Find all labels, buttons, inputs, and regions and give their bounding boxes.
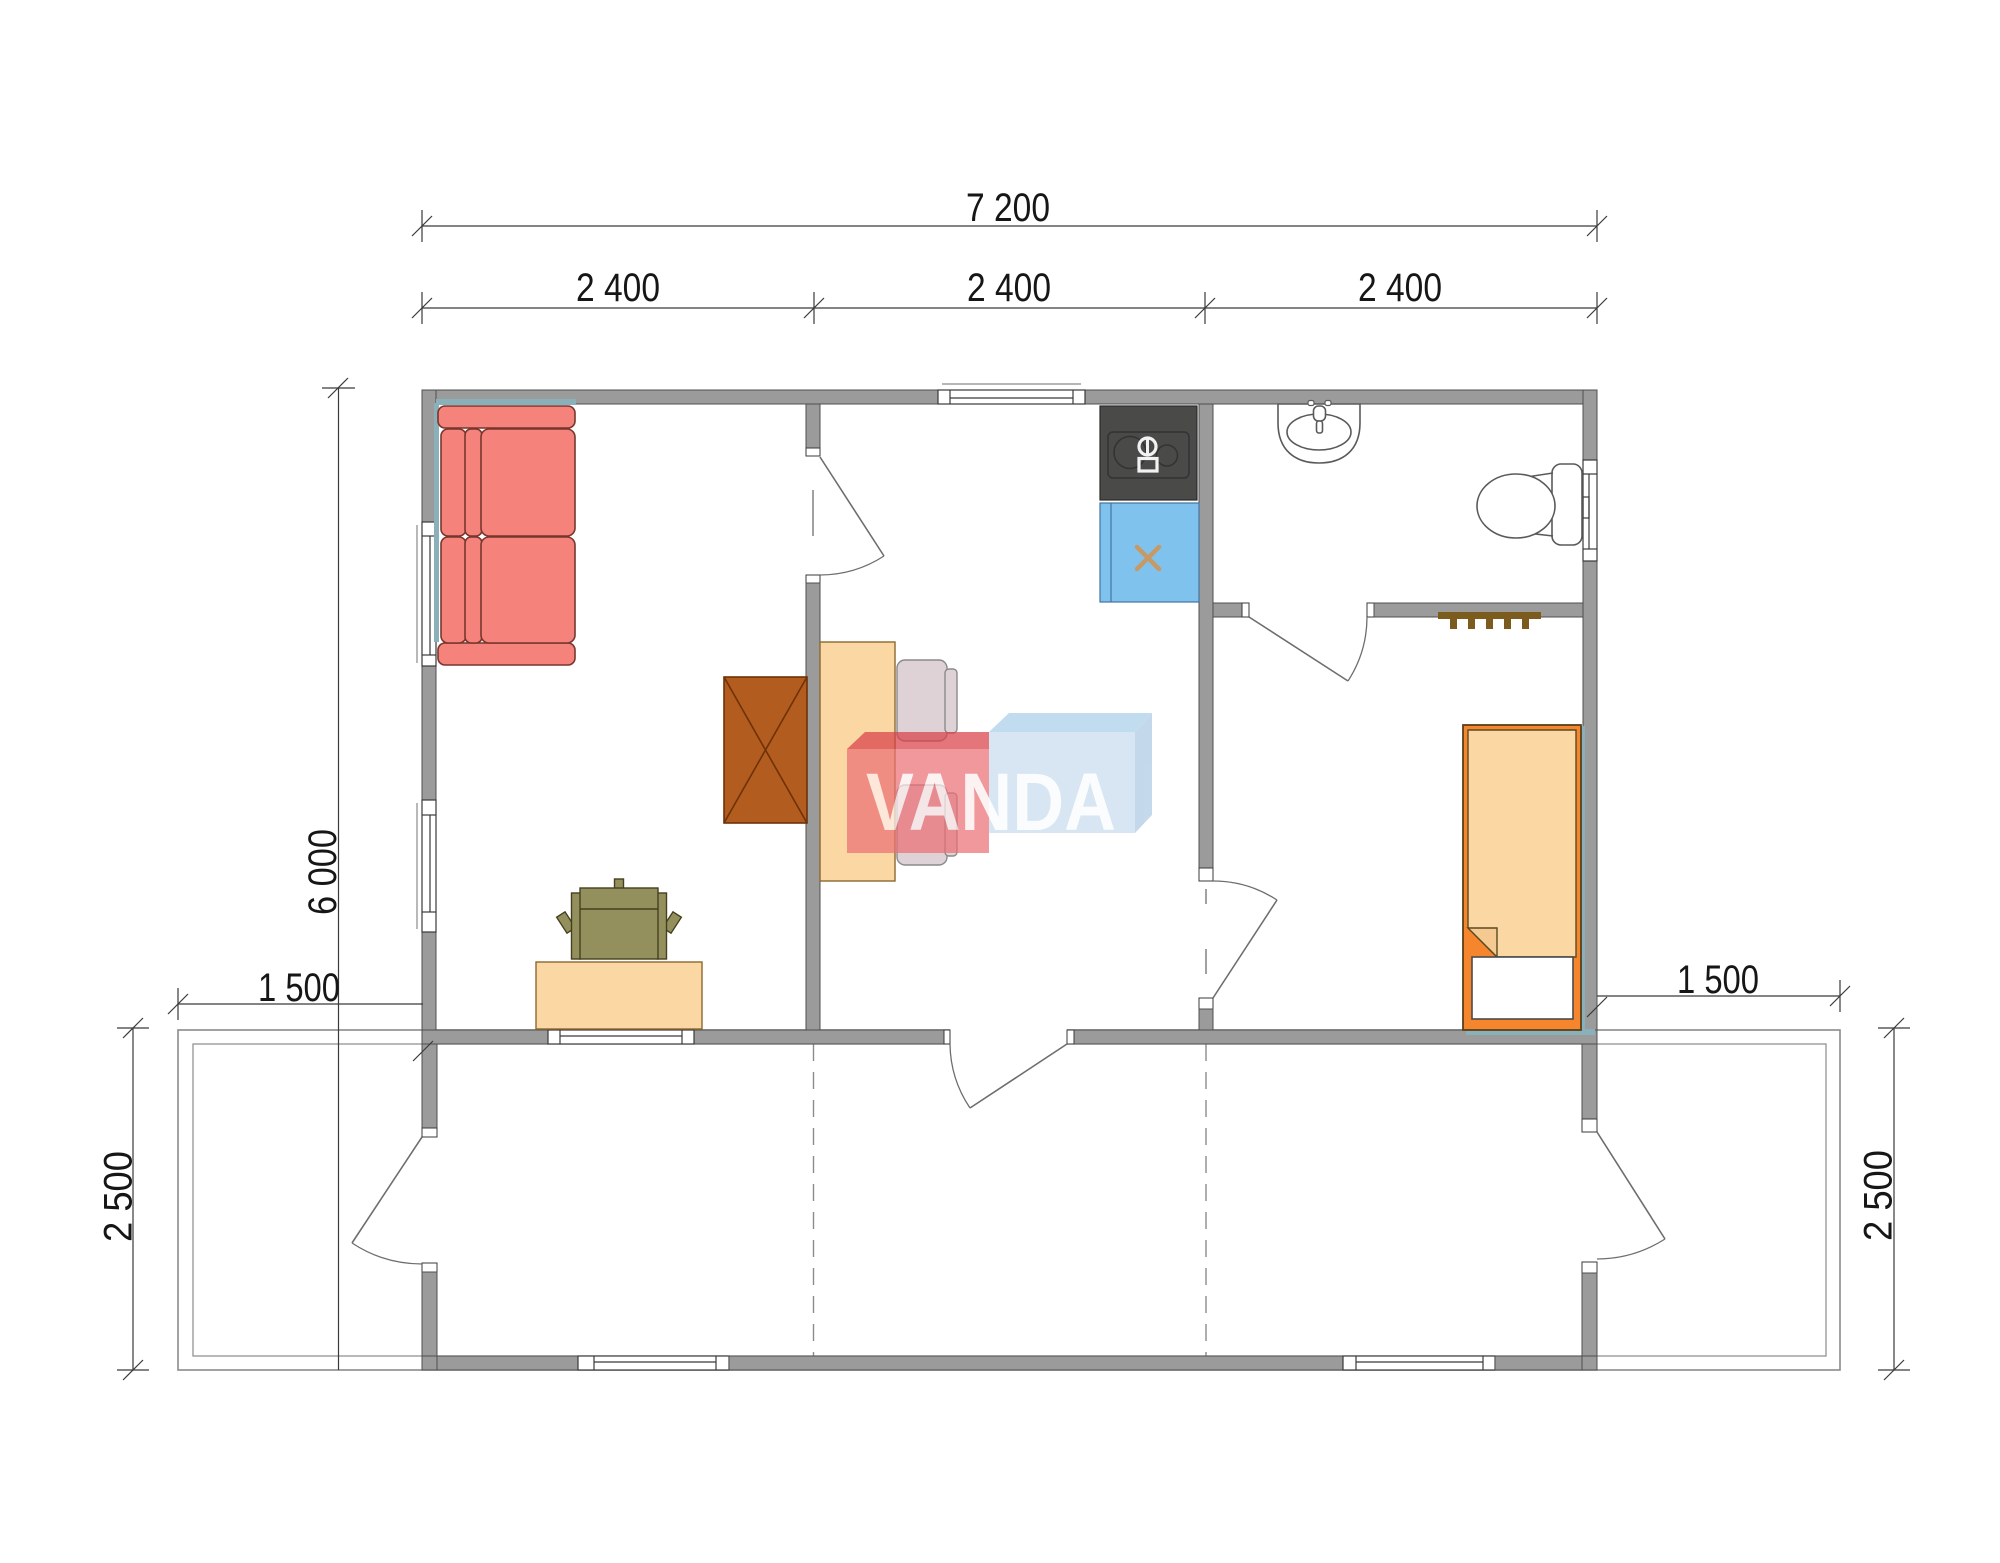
svg-text:2 400: 2 400	[967, 266, 1051, 310]
svg-text:1 500: 1 500	[258, 966, 340, 1010]
svg-text:2 400: 2 400	[1358, 266, 1442, 310]
svg-text:6 000: 6 000	[301, 829, 345, 915]
svg-text:7 200: 7 200	[966, 186, 1050, 230]
svg-text:2 500: 2 500	[97, 1151, 141, 1242]
svg-text:2 500: 2 500	[1857, 1150, 1901, 1241]
svg-text:2 400: 2 400	[576, 266, 660, 310]
svg-text:1 500: 1 500	[1677, 958, 1759, 1002]
svg-text:VANDA: VANDA	[866, 757, 1116, 848]
